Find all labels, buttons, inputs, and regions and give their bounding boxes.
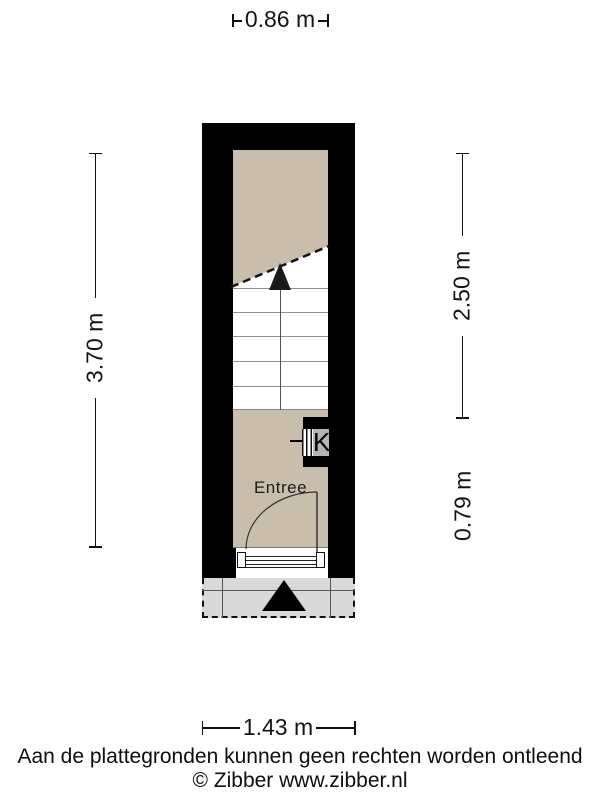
porch-step-line: [202, 590, 355, 591]
footer-copyright: © Zibber www.zibber.nl: [0, 769, 600, 793]
meter-cupboard-hatch-icon: [302, 429, 313, 456]
door-jamb-left: [237, 552, 246, 568]
door-sill-line: [246, 567, 316, 568]
entree-room-label: Entree: [233, 478, 328, 498]
meter-cupboard-symbol: K: [313, 429, 329, 456]
dim-left-label: 3.70 m: [81, 298, 109, 398]
meter-cupboard-label: K: [313, 427, 330, 457]
dim-left-tick-bottom: [89, 546, 102, 548]
dim-right-upper-tick-top: [456, 153, 469, 155]
door-jamb-right: [316, 552, 325, 568]
footer-disclaimer: Aan de plattegronden kunnen geen rechten…: [0, 745, 600, 769]
dim-right-lower-label: 0.79 m: [449, 460, 477, 552]
entrance-porch: [202, 578, 355, 618]
dim-bottom-label: 1.43 m: [240, 714, 316, 740]
dim-bottom-label-wrap: 1.43 m: [213, 714, 343, 741]
stairs-center-line: [280, 289, 281, 410]
door-sill-line: [246, 560, 316, 561]
meter-cupboard-tick: [290, 440, 303, 442]
porch-side-line-left: [222, 578, 223, 618]
floorplan-page: 0.86 m 3.70 m 2.50 m 0.79 m K Entree: [0, 0, 600, 800]
dim-left-tick-top: [89, 153, 102, 155]
dim-bottom-tick-left: [202, 721, 204, 735]
dim-bottom-tick-right: [354, 721, 356, 735]
dim-top-label: 0.86 m: [242, 6, 318, 32]
door-sill-line: [246, 556, 316, 557]
door-sill-line: [246, 564, 316, 565]
dim-top-label-wrap: 0.86 m: [215, 6, 345, 33]
dim-right-upper-label: 2.50 m: [448, 236, 476, 336]
porch-side-line-right: [330, 578, 331, 618]
dim-right-upper-tick-bottom: [456, 417, 469, 419]
